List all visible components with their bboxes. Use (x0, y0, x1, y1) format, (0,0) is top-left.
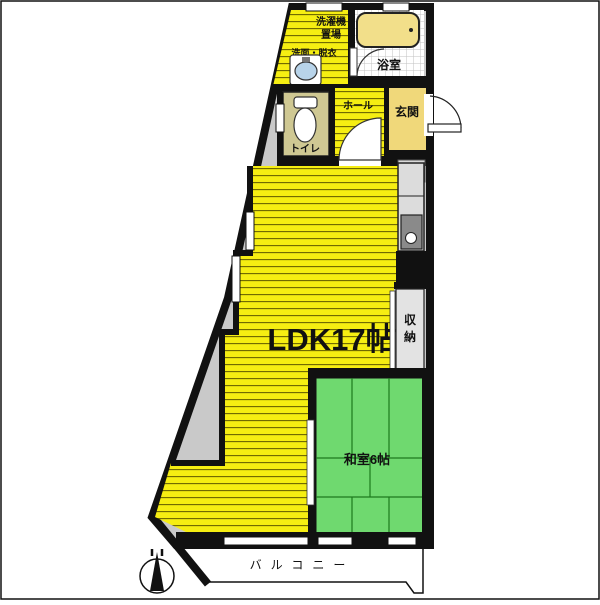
ldk-window-upper (246, 212, 254, 250)
bathroom: 浴室 (352, 10, 424, 80)
top-window-bathroom (383, 3, 409, 11)
toilet-tank-icon (294, 97, 317, 108)
hall-label: ホール (343, 100, 373, 112)
bathtub-drain-icon (409, 28, 413, 32)
bottom-window-washitsu-right (388, 537, 416, 545)
kitchen-faucet-icon (406, 233, 417, 244)
genkan: 玄関 (388, 88, 426, 154)
wall-toilet-hall (329, 90, 335, 158)
wall-storage-top (394, 282, 432, 289)
toilet-room: トイレ (283, 92, 329, 156)
storage-label-line2: 納 (404, 329, 416, 344)
washitsu-sliding-door (307, 420, 314, 505)
wall-washitsu-top (308, 368, 432, 378)
toilet-bowl-icon (294, 108, 316, 142)
toilet-window (276, 104, 284, 132)
bathroom-label: 浴室 (377, 57, 401, 72)
bottom-window-washitsu-left (318, 537, 352, 545)
storage-sliding-door (390, 291, 395, 369)
top-window-washroom (306, 3, 342, 11)
wall-washitsu-right (422, 372, 432, 545)
genkan-floor (388, 88, 426, 154)
washitsu-room: 和室6帖 (307, 368, 432, 545)
floorplan-drawing: 洗濯機 置場 洗面・脱衣 浴室 トイレ ホール 玄関 (0, 0, 600, 600)
washbasin-bowl-icon (295, 62, 317, 80)
bathroom-door-leaf (350, 48, 357, 76)
washbasin-tap-icon (302, 57, 310, 62)
bottom-window-ldk (224, 537, 308, 545)
balcony-label: バルコニー (250, 558, 355, 572)
washitsu-label: 和室6帖 (344, 452, 390, 467)
laundry-label-line2: 置場 (321, 28, 341, 41)
entrance-door-leaf (428, 124, 461, 132)
ldk-label: LDK17帖 (267, 322, 396, 357)
storage-label-line1: 収 (404, 313, 417, 327)
wall-hall-genkan (384, 88, 389, 158)
floorplan-page: 洗濯機 置場 洗面・脱衣 浴室 トイレ ホール 玄関 (0, 0, 600, 600)
kitchen (398, 163, 424, 251)
toilet-label: トイレ (290, 143, 320, 155)
genkan-label: 玄関 (395, 104, 419, 119)
ldk-window-lower (232, 256, 240, 302)
wall-bathroom-bottom (348, 76, 432, 88)
laundry-label-line1: 洗濯機 (316, 15, 346, 28)
